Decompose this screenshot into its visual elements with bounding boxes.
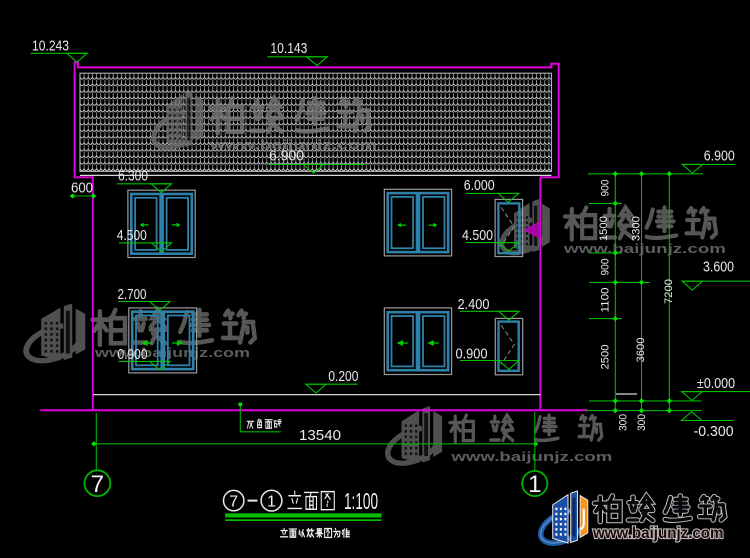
svg-text:3300: 3300 bbox=[631, 216, 643, 241]
svg-text:1:100: 1:100 bbox=[344, 488, 378, 514]
svg-text:www.baijunjz.com: www.baijunjz.com bbox=[592, 525, 723, 542]
svg-text:4.500: 4.500 bbox=[117, 228, 147, 244]
svg-text:2.400: 2.400 bbox=[458, 297, 490, 313]
svg-text:300: 300 bbox=[618, 414, 630, 431]
svg-text:6.300: 6.300 bbox=[118, 169, 148, 185]
svg-text:0.900: 0.900 bbox=[118, 347, 148, 363]
svg-text:300: 300 bbox=[636, 414, 648, 431]
svg-text:-0.300: -0.300 bbox=[694, 424, 734, 440]
svg-text:600: 600 bbox=[71, 180, 93, 196]
svg-text:7: 7 bbox=[91, 471, 104, 498]
svg-text:±0.000: ±0.000 bbox=[697, 376, 735, 392]
svg-text:10.143: 10.143 bbox=[270, 41, 307, 57]
svg-text:6.900: 6.900 bbox=[704, 149, 735, 165]
svg-text:0.200: 0.200 bbox=[328, 369, 358, 385]
svg-text:1: 1 bbox=[528, 471, 541, 498]
svg-text:6.000: 6.000 bbox=[464, 178, 495, 194]
svg-text:www.baijunjz.com: www.baijunjz.com bbox=[450, 449, 612, 464]
svg-text:2500: 2500 bbox=[600, 345, 612, 370]
svg-text:1100: 1100 bbox=[600, 288, 612, 313]
svg-text:6.900: 6.900 bbox=[269, 149, 304, 165]
svg-text:7: 7 bbox=[229, 494, 238, 511]
svg-text:www.baijunjz.com: www.baijunjz.com bbox=[562, 242, 726, 256]
svg-text:1: 1 bbox=[267, 494, 276, 511]
svg-text:10.243: 10.243 bbox=[32, 39, 69, 55]
svg-text:3600: 3600 bbox=[635, 338, 647, 363]
svg-text:900: 900 bbox=[600, 180, 612, 197]
svg-text:7200: 7200 bbox=[663, 279, 675, 304]
svg-text:1500: 1500 bbox=[598, 216, 610, 241]
svg-text:900: 900 bbox=[600, 259, 612, 276]
svg-text:4.500: 4.500 bbox=[462, 228, 493, 244]
svg-text:0.900: 0.900 bbox=[456, 346, 488, 362]
svg-text:13540: 13540 bbox=[299, 428, 341, 444]
svg-text:2.700: 2.700 bbox=[118, 287, 147, 303]
svg-text:3.600: 3.600 bbox=[703, 259, 734, 275]
